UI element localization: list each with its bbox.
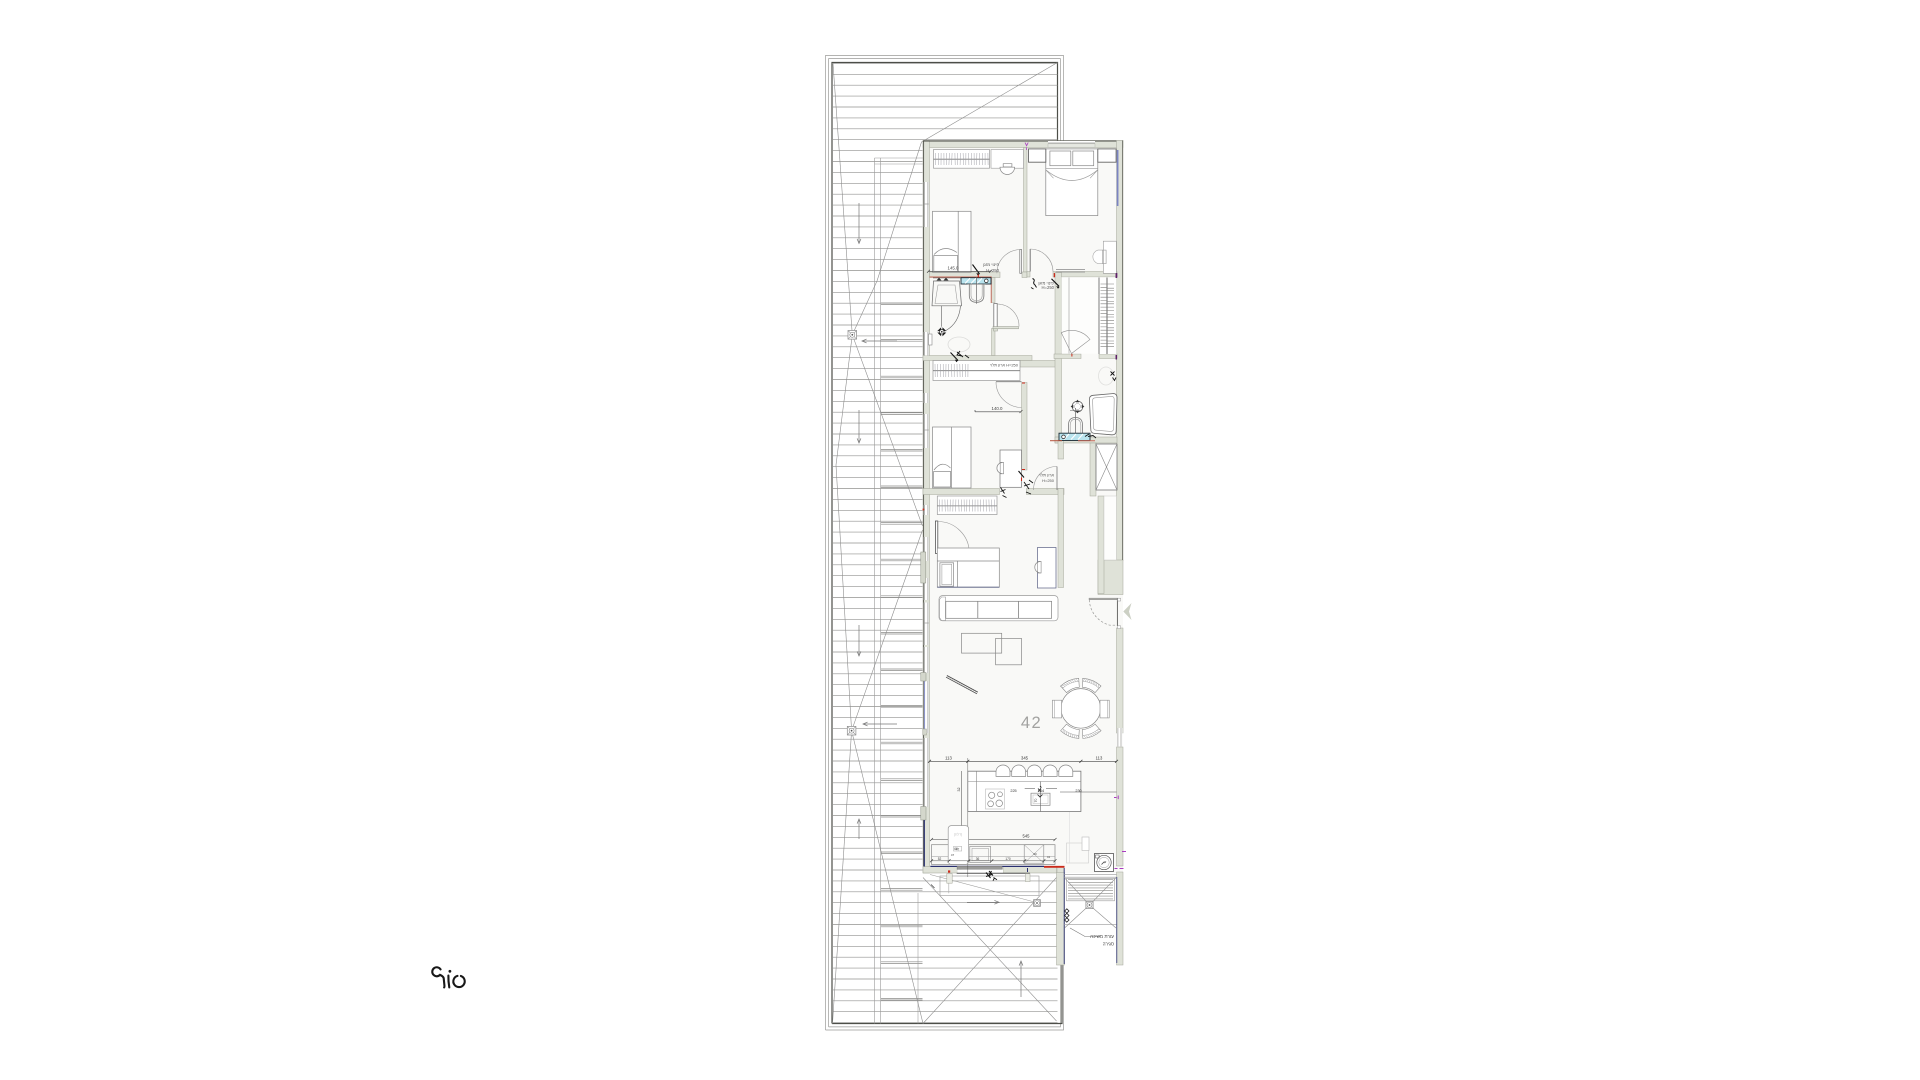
svg-text:36: 36 — [976, 857, 980, 861]
svg-text:42: 42 — [1021, 714, 1042, 732]
svg-text:(דלת): (דלת) — [954, 833, 962, 837]
svg-text:32: 32 — [957, 788, 961, 792]
svg-text:פינוי מזגן: פינוי מזגן — [983, 262, 999, 267]
svg-text:104: 104 — [1038, 789, 1044, 793]
svg-text:41: 41 — [1047, 855, 1051, 859]
svg-text:סגירה: סגירה — [1103, 941, 1114, 946]
svg-text:70: 70 — [1034, 799, 1038, 803]
svg-text:52: 52 — [938, 857, 942, 861]
svg-text:60: 60 — [954, 847, 958, 851]
svg-text:345: 345 — [1021, 756, 1029, 761]
svg-text:ארון תלוי H=250: ארון תלוי H=250 — [990, 363, 1019, 368]
svg-text:225: 225 — [1010, 789, 1016, 793]
svg-text:H=250: H=250 — [1042, 285, 1055, 290]
svg-text:113: 113 — [1096, 756, 1103, 761]
svg-text:113: 113 — [945, 756, 952, 761]
svg-text:170: 170 — [1005, 857, 1011, 861]
svg-text:545: 545 — [1023, 834, 1031, 839]
svg-text:47: 47 — [951, 853, 955, 857]
svg-text:H=250: H=250 — [1042, 478, 1055, 483]
svg-text:H=250: H=250 — [986, 268, 999, 273]
svg-text:140.0: 140.0 — [992, 406, 1004, 411]
svg-text:עזרת משיכה: עזרת משיכה — [1090, 934, 1114, 939]
svg-text:145.0: 145.0 — [948, 266, 960, 271]
svg-text:60: 60 — [1033, 852, 1037, 856]
